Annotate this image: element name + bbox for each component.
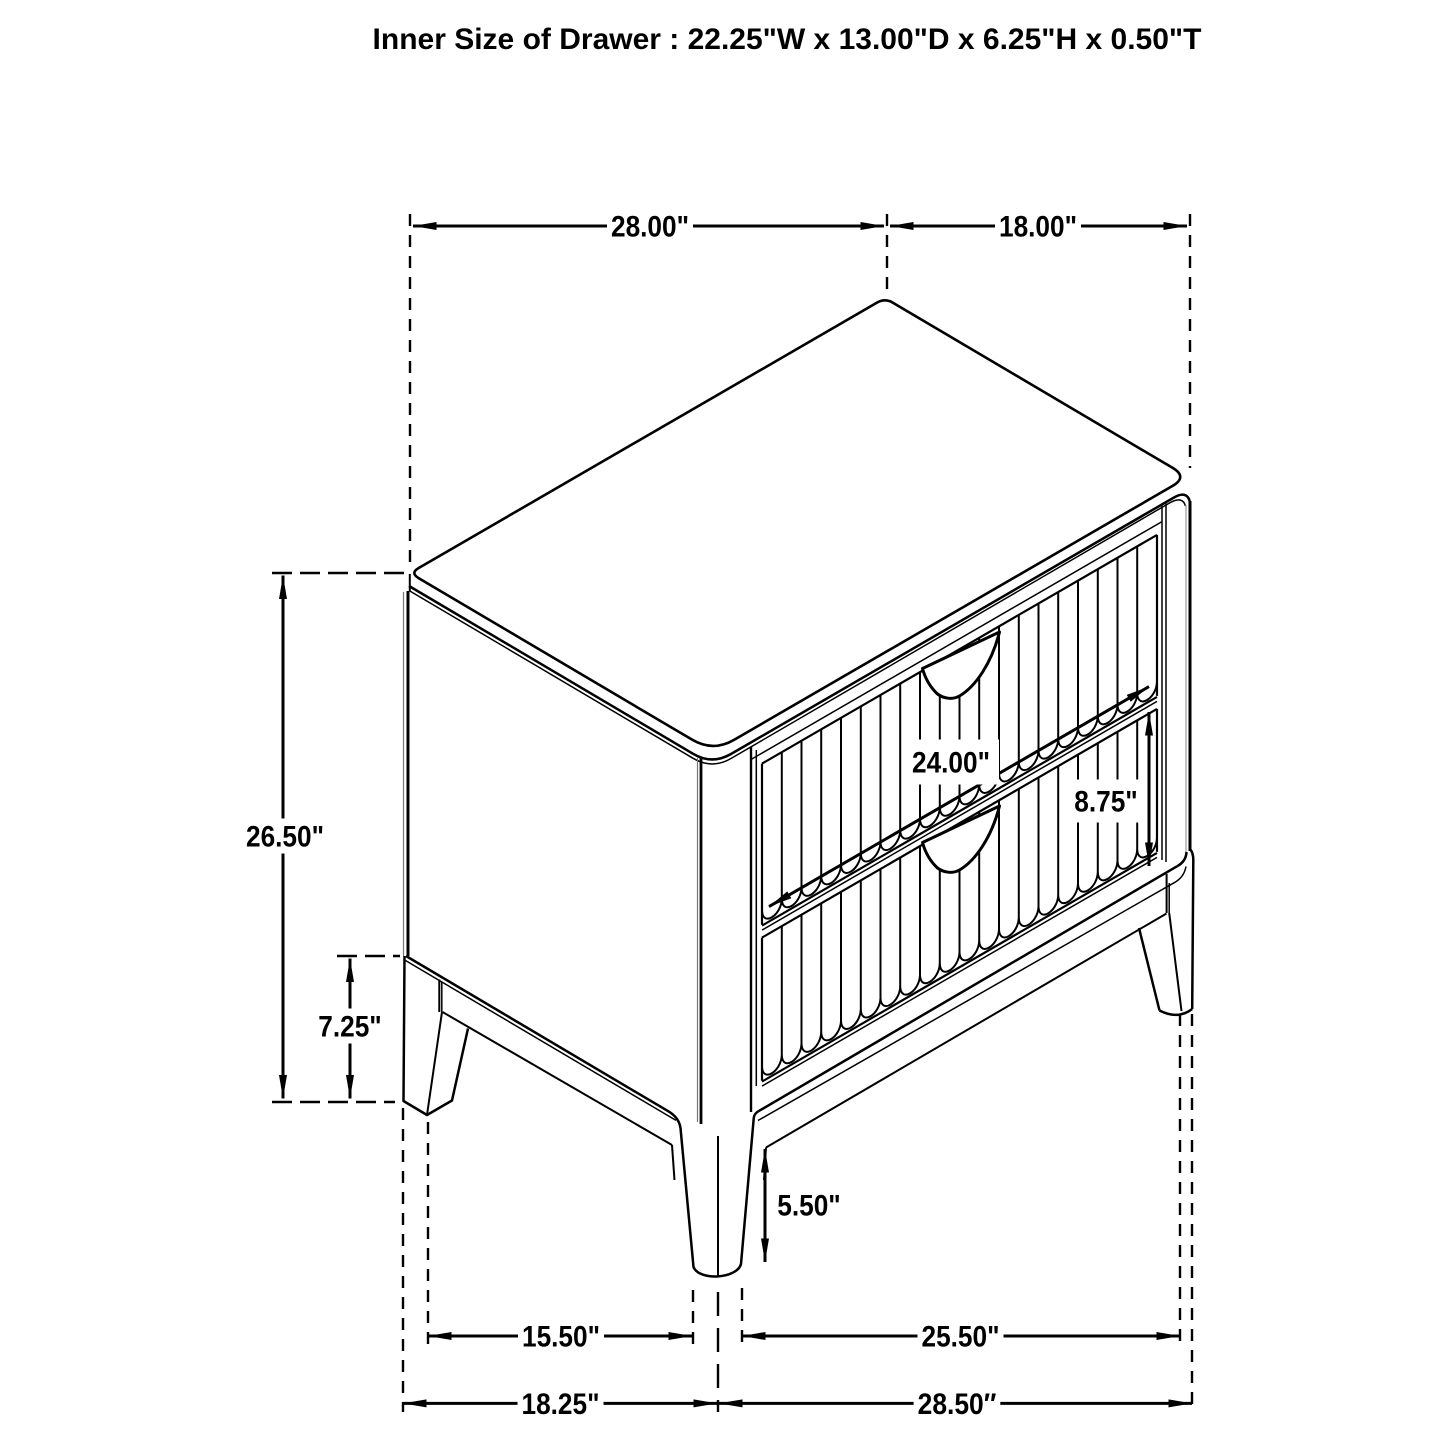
svg-text:7.25": 7.25"	[318, 1011, 382, 1044]
svg-text:24.00": 24.00"	[912, 747, 990, 780]
svg-text:26.50": 26.50"	[246, 821, 324, 854]
svg-text:15.50": 15.50"	[522, 1321, 600, 1354]
svg-text:25.50": 25.50"	[922, 1321, 1000, 1354]
svg-text:5.50": 5.50"	[777, 1190, 841, 1223]
svg-text:18.00": 18.00"	[999, 211, 1077, 244]
svg-text:8.75": 8.75"	[1074, 786, 1138, 819]
svg-text:28.50″: 28.50″	[918, 1388, 997, 1421]
svg-text:28.00": 28.00"	[611, 211, 689, 244]
svg-text:18.25": 18.25"	[522, 1388, 600, 1421]
svg-text:Inner Size of Drawer : 22.25"W: Inner Size of Drawer : 22.25"W x 13.00"D…	[373, 23, 1202, 56]
